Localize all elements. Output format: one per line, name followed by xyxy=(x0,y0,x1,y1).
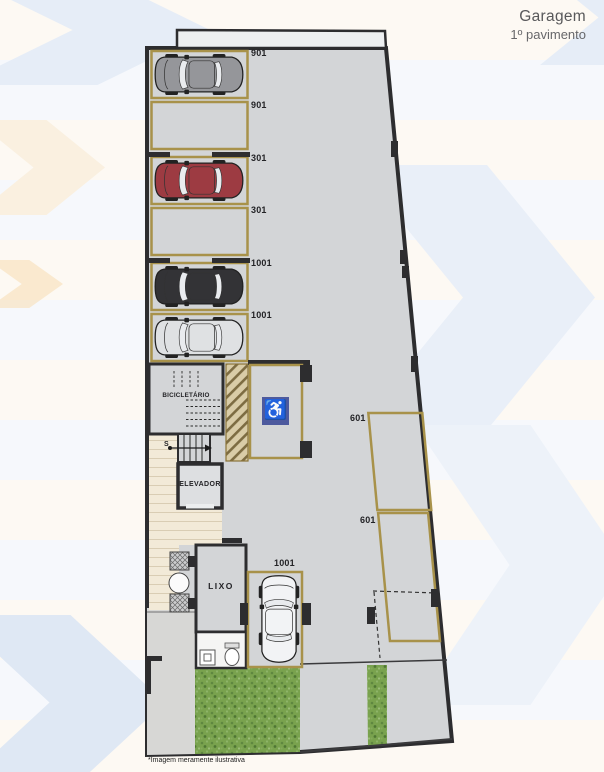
car-white-hatch xyxy=(259,576,300,662)
spot-label-601-a: 601 xyxy=(350,413,366,423)
elevator-label: ELEVADOR xyxy=(178,481,222,488)
trash-room-label: LIXO xyxy=(198,581,244,591)
left-sidewalk xyxy=(147,608,195,755)
grass-strip xyxy=(367,665,387,746)
ramp-hatch xyxy=(226,364,248,461)
car-black-suv xyxy=(155,266,243,307)
chair xyxy=(170,552,189,570)
disclaimer-text: *Imagem meramente ilustrativa xyxy=(148,757,245,764)
car-silver-sedan xyxy=(155,317,243,358)
car-gray-suv xyxy=(155,54,243,95)
toilet-tank xyxy=(225,643,239,648)
spot-label-1001-b: 1001 xyxy=(251,310,272,320)
round-table xyxy=(169,573,189,593)
floorplan-page: 901 901 301 301 1001 1001 601 601 1001 B… xyxy=(0,0,604,772)
wheelchair-icon: ♿ xyxy=(262,397,289,425)
bathroom xyxy=(196,632,246,668)
page-title: Garagem xyxy=(510,8,586,26)
top-sidewalk-strip xyxy=(177,30,386,48)
toilet xyxy=(225,649,239,666)
spot-label-1001-c: 1001 xyxy=(274,558,295,568)
elevator-door xyxy=(186,504,214,509)
car-red-sedan xyxy=(155,160,243,201)
bike-room xyxy=(149,364,223,434)
spot-label-1001-a: 1001 xyxy=(251,258,272,268)
spot-label-601-b: 601 xyxy=(360,515,376,525)
page-subtitle: 1º pavimento xyxy=(510,27,586,42)
chair xyxy=(170,594,189,612)
bike-room-label: BICICLETÁRIO xyxy=(149,392,223,399)
sink xyxy=(200,650,215,665)
spot-label-901-b: 901 xyxy=(251,100,267,110)
spot-label-301-a: 301 xyxy=(251,153,267,163)
title-block: Garagem 1º pavimento xyxy=(510,8,586,42)
spot-label-901-a: 901 xyxy=(251,48,267,58)
floorplan-drawing xyxy=(0,0,604,772)
stairs-label: S xyxy=(164,441,169,448)
grass-main xyxy=(195,666,300,754)
spot-label-301-b: 301 xyxy=(251,205,267,215)
